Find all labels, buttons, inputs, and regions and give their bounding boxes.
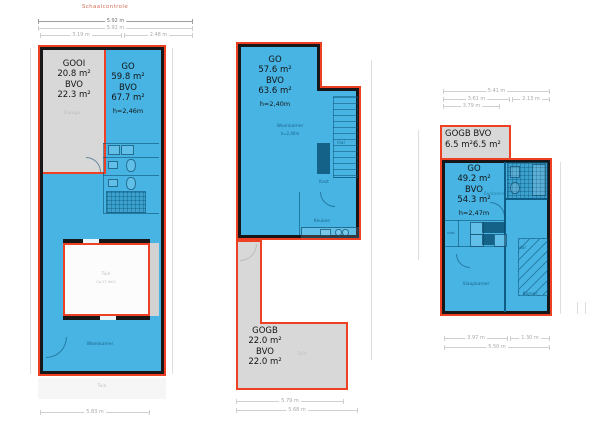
interior-wall: [103, 143, 159, 144]
room-label-courtyard: Tuin: [101, 272, 110, 278]
dim-label: 3.19 m: [70, 32, 92, 39]
bathtub-fixture: [532, 164, 546, 196]
closet-fixture: [317, 143, 330, 174]
room-label-kast: Kast: [319, 180, 329, 186]
dimension-line: [371, 60, 372, 360]
main-area-label: GO 57.6 m² BVO 63.6 m² h=2,40m: [242, 55, 308, 109]
garage-area-label: GOOI 20.8 m² BVO 22.3 m²: [43, 59, 105, 100]
storage-area: GOGB BVO 6.5 m²6.5 m²: [440, 125, 511, 160]
dim-label: 2.48 m: [148, 32, 170, 39]
dimension-line: 3.97 m: [444, 338, 508, 339]
bvo-value: 6.5 m²: [473, 140, 501, 150]
dimension-line: [418, 130, 419, 260]
toilet-fixture: [510, 182, 520, 194]
dimension-line: 3.61 m: [443, 99, 510, 100]
bvo-code: BVO: [473, 129, 491, 139]
room-label-kast-cell: Kast: [472, 224, 480, 230]
interior-wall: [299, 192, 300, 235]
dimension-line: 5.68 m: [236, 410, 358, 411]
dimension-line: [560, 162, 561, 314]
toilet-fixture: [126, 159, 136, 172]
sink-fixture: [510, 166, 520, 178]
outdoor-area-label: GOGB 22.0 m² BVO 22.0 m²: [238, 326, 292, 367]
dimension-line: 1.30 m: [510, 338, 550, 339]
toilet-fixture: [126, 177, 136, 190]
outdoor-outline: [346, 322, 348, 390]
area-code: GO: [444, 164, 504, 174]
room-label-kamer: Kamer: [523, 292, 538, 298]
interior-wall: [458, 220, 459, 247]
room-label-garage: Garage: [64, 111, 80, 117]
closet-cell: [494, 222, 505, 233]
bvo-code: BVO: [43, 80, 105, 90]
dimension-line: 5.41 m: [443, 91, 550, 92]
courtyard-note: Ca.17.3m2: [96, 279, 115, 285]
dimension-line: 2.48 m: [124, 35, 193, 36]
area-value: 20.8 m²: [43, 69, 105, 79]
dimension-line: [585, 302, 586, 314]
dryer-fixture: [121, 145, 134, 155]
window-opening: [100, 316, 116, 320]
dimension-line: 5.79 m: [236, 401, 344, 402]
interior-wall: [103, 175, 159, 176]
area-value: 59.8 m²: [98, 72, 158, 82]
bvo-value: 22.3 m²: [43, 90, 105, 100]
sink-fixture: [320, 229, 331, 236]
dim-label: 5.92 m: [105, 25, 127, 32]
washer-fixture: [108, 145, 120, 155]
outdoor-outline: [236, 240, 262, 242]
dimension-line: 3.19 m: [40, 35, 122, 36]
dimension-line: 2.13 m: [512, 99, 550, 100]
room-label-slaapkamer: Slaapkamer: [463, 282, 490, 288]
plan-outline: [320, 86, 361, 88]
dim-label: 3.79 m: [461, 103, 483, 110]
room-label-garden: Tuin: [97, 384, 106, 390]
bvo-code: BVO: [98, 83, 158, 93]
main-area-label: GO 59.8 m² BVO 67.7 m² h=2,46m: [98, 62, 158, 116]
plan-left: GOOI 20.8 m² BVO 22.3 m² Garage GO 59.8 …: [38, 45, 166, 376]
interior-wall: [504, 198, 547, 200]
area-code: GOOI: [43, 59, 105, 69]
room-label-kast: Kast: [447, 230, 455, 236]
stove-fixture: [335, 229, 342, 236]
closet-cell: [482, 222, 494, 233]
dimension-line: 3.79 m: [443, 106, 500, 107]
bvo-value: 22.0 m²: [238, 357, 292, 367]
ceiling-height: h=2,47m: [444, 208, 504, 218]
sink-fixture: [108, 179, 118, 187]
outdoor-area: [236, 240, 348, 390]
area-value: 57.6 m²: [242, 65, 308, 75]
area-code: GO: [98, 62, 158, 72]
outdoor-outline: [236, 388, 348, 390]
sink-fixture: [108, 161, 118, 169]
shower-floor: [106, 191, 146, 213]
room-label-hal: Hal: [518, 246, 525, 252]
dimension-line: [577, 302, 578, 314]
plan-right: GO 49.2 m² BVO 54.3 m² h=2,47m Badkamer …: [440, 158, 552, 316]
dimension-line: [172, 48, 173, 374]
dimension-line: [30, 48, 31, 374]
room-label-badkamer: Badkamer: [484, 191, 504, 197]
dim-label: 1.30 m: [519, 335, 541, 342]
garden-area: Tuin: [38, 378, 166, 399]
outdoor-outline: [236, 240, 238, 390]
dimension-line: 5.92 m: [38, 28, 193, 29]
closet-cell: [494, 234, 507, 247]
area-code: GOGB: [238, 326, 292, 336]
ceiling-height: h=2,40m: [242, 99, 308, 109]
dimension-line: 5.92 m: [38, 21, 193, 22]
ceiling-height: h=2,46m: [98, 106, 158, 116]
dim-label: 5.83 m: [84, 409, 106, 416]
dim-label: 3.97 m: [465, 335, 487, 342]
bvo-code: BVO: [238, 347, 292, 357]
room-label-living: Woonkamer: [277, 124, 304, 130]
dim-label: 5.79 m: [279, 398, 301, 405]
plan-outline: [236, 42, 238, 240]
dim-label: 5.92 m: [105, 18, 127, 25]
plan-middle: GO 57.6 m² BVO 63.6 m² h=2,40m Woonkamer…: [236, 42, 361, 390]
dim-label: 2.13 m: [520, 96, 542, 103]
interior-wall: [103, 213, 159, 214]
closet-cell: [482, 234, 494, 245]
dim-label: 5.68 m: [286, 407, 308, 414]
area-value: 22.0 m²: [238, 336, 292, 346]
area-value: 49.2 m²: [444, 174, 504, 184]
dimension-line: 5.83 m: [40, 412, 150, 413]
bvo-value: 67.7 m²: [98, 93, 158, 103]
outdoor-outline: [260, 322, 348, 324]
interior-wall: [103, 143, 104, 213]
storage-values: 6.5 m²6.5 m²: [445, 140, 509, 151]
courtyard-side-strip: [150, 243, 159, 316]
room-note: h=2,40m: [281, 131, 300, 137]
room-label-living: Woonkamer: [87, 342, 114, 348]
bvo-value: 63.6 m²: [242, 86, 308, 96]
bvo-code: BVO: [242, 76, 308, 86]
outdoor-outline: [260, 240, 262, 324]
area-code: GO: [242, 55, 308, 65]
area-value: 6.5 m²: [445, 140, 473, 150]
dim-label: 5.41 m: [486, 88, 508, 95]
dim-label: 5.50 m: [486, 344, 508, 351]
room-label-keuken: Keuken: [314, 219, 330, 225]
dim-label: 3.61 m: [466, 96, 488, 103]
plan-outline: [320, 42, 322, 88]
plan-outline: [359, 86, 361, 240]
interior-wall: [444, 220, 505, 221]
dimension-line: 5.50 m: [444, 347, 550, 348]
interior-wall: [103, 157, 159, 158]
storage-codes: GOGB BVO: [445, 129, 509, 140]
plan-outline: [236, 42, 322, 44]
staircase: [333, 96, 358, 178]
room-label-hal: Hal: [337, 141, 344, 147]
area-code: GOGB: [445, 129, 471, 139]
floorplan-canvas: Schaalcontrole 5.92 m 5.92 m 3.19 m 2.48…: [0, 0, 600, 424]
room-label-garden: Tuin: [297, 352, 306, 358]
window-opening: [83, 239, 99, 243]
scale-check-title: Schaalcontrole: [55, 4, 155, 10]
stove-fixture: [342, 229, 349, 236]
